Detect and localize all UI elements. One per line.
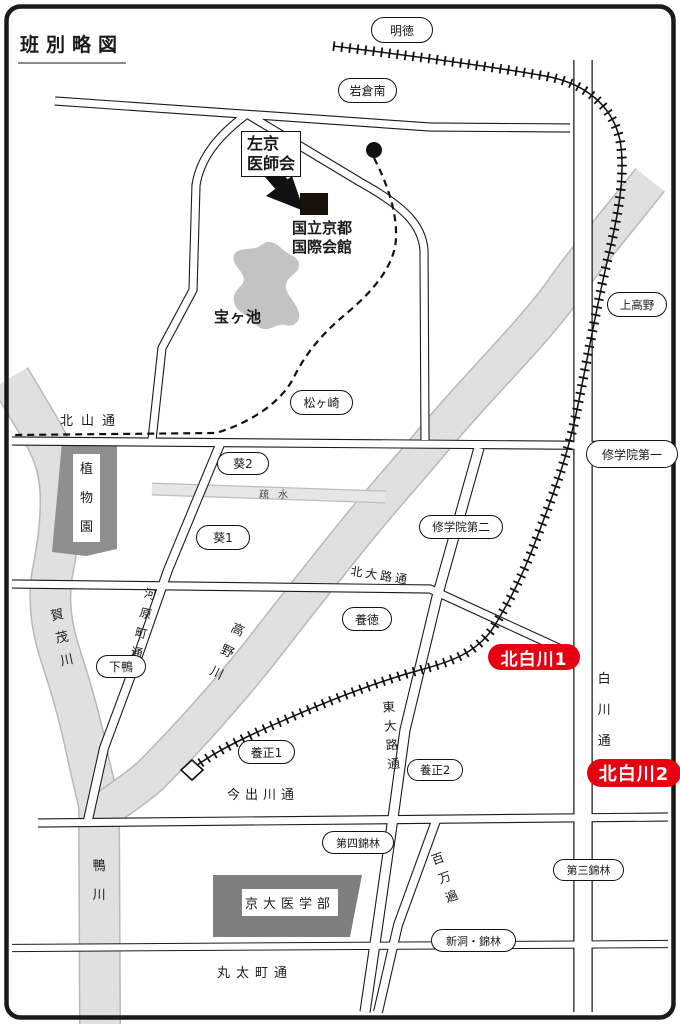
- oval-matsugasaki: 松ヶ崎: [290, 390, 353, 415]
- botanical-garden-labelbox: 植物園: [73, 454, 100, 542]
- oval-aoi-2: 葵2: [217, 452, 269, 475]
- botanical-garden-label: 植物園: [79, 455, 93, 542]
- meeting-point-dot: [366, 142, 382, 158]
- oval-aoi-1: 葵1: [196, 525, 250, 550]
- oval-dai4-kinrin: 第四錦林: [322, 831, 394, 854]
- kokusaikaikan-line1: 国立京都: [292, 219, 352, 238]
- kokusaikaikan-line2: 国際会館: [292, 238, 352, 257]
- oval-shugakuin-2: 修学院第二: [419, 515, 503, 539]
- oval-shimogamo: 下鴨: [96, 655, 146, 678]
- road-label-imadegawa: 今出川通: [227, 784, 299, 803]
- road-label-kitayama: 北山通: [60, 410, 123, 429]
- oval-yosei-1: 養正1: [238, 740, 295, 764]
- road-label-marutamachi: 丸太町通: [217, 962, 293, 981]
- oval-shinto-kinrin: 新洞・錦林: [431, 929, 516, 952]
- pond-takaragaike-label: 宝ヶ池: [214, 306, 262, 327]
- sakyo-medical-assoc-label: 左京 医師会: [241, 131, 301, 177]
- red-label-kitashirakawa-1: 北白川1: [488, 644, 580, 670]
- oval-yosei-2: 養正2: [407, 759, 463, 781]
- red-label-kitashirakawa-2: 北白川2: [587, 759, 680, 787]
- kokusaikaikan-square: [300, 193, 328, 215]
- oval-shugakuin-1: 修学院第一: [586, 440, 678, 468]
- oval-dai3-kinrin: 第三錦林: [553, 859, 624, 881]
- river-label-kamogawa: 鴨川: [92, 852, 106, 910]
- sakyo-medical-line1: 左京: [247, 134, 295, 154]
- oval-kami-takano: 上高野: [607, 292, 667, 317]
- road-label-shirakawa: 白川通: [597, 664, 611, 757]
- page-title: 班別略図: [18, 30, 126, 64]
- sakyo-medical-line2: 医師会: [247, 154, 295, 174]
- map-canvas: 班別略図 左京 医師会 国立京都 国際会館 宝ヶ池 明徳 岩倉南 上高野 松ヶ崎…: [0, 0, 680, 1024]
- kyodai-med-label: 京大医学部: [242, 889, 338, 916]
- oval-iwakura-minami: 岩倉南: [338, 78, 397, 103]
- oval-yotoku: 養徳: [342, 607, 392, 631]
- kokusaikaikan-label: 国立京都 国際会館: [292, 219, 352, 257]
- oval-meitoku: 明徳: [371, 17, 433, 43]
- canal-label-sosui: 疏水: [259, 486, 297, 501]
